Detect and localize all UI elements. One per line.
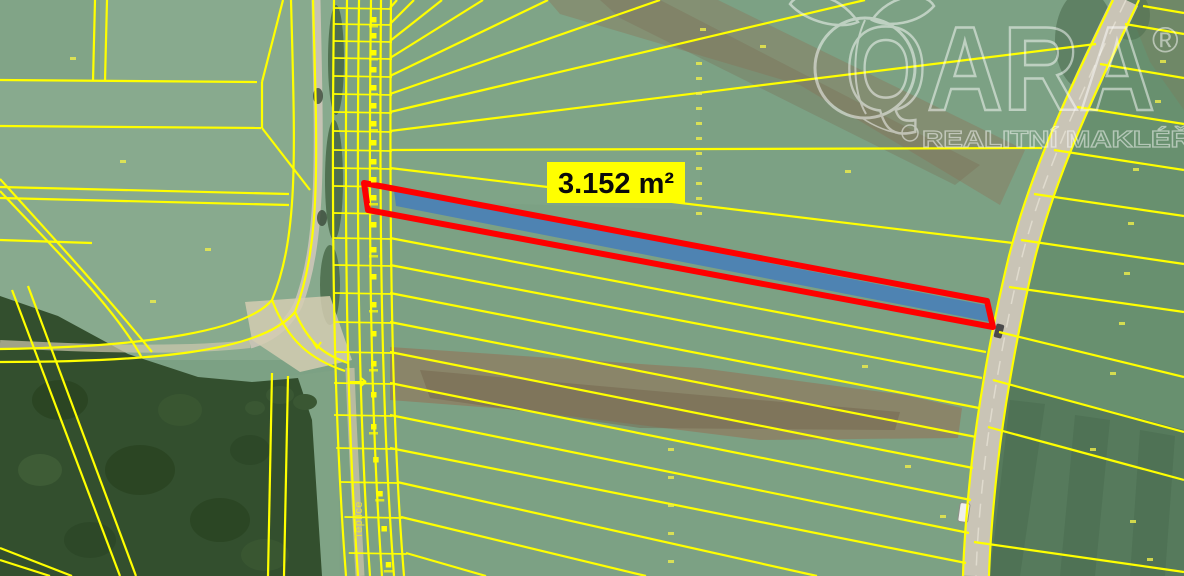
- area-label-text: 3.152 m²: [558, 168, 674, 200]
- aerial-cadastral-map: 3.152 m² Teplice QARA ® REALITNÍ MAKLÉŘI: [0, 0, 1184, 576]
- registered-mark: ®: [1152, 19, 1179, 60]
- watermark: QARA ® REALITNÍ MAKLÉŘI: [790, 0, 1184, 152]
- tree-shadow: [317, 210, 327, 226]
- map-image: 3.152 m² Teplice QARA ® REALITNÍ MAKLÉŘI: [0, 0, 1184, 576]
- watermark-subtitle: REALITNÍ MAKLÉŘI: [922, 125, 1184, 152]
- area-label: 3.152 m²: [547, 162, 685, 203]
- road-label-teplice: Teplice: [353, 501, 365, 539]
- wordmark-text: QARA: [845, 2, 1155, 136]
